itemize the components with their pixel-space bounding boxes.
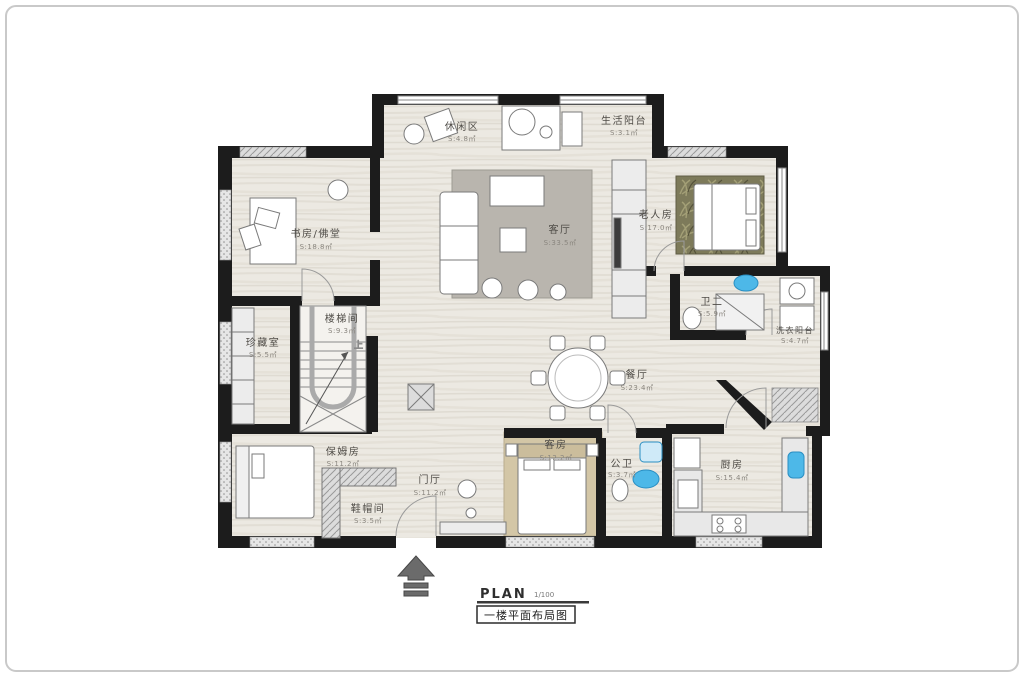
- svg-text:客厅: 客厅: [549, 223, 572, 236]
- elder-pillow-1: [746, 188, 756, 214]
- fridge: [674, 438, 700, 468]
- room-label-bath2: 卫二S:5.9㎡: [698, 297, 726, 318]
- kitchen-sink: [678, 480, 698, 508]
- svg-text:卫二: 卫二: [701, 297, 724, 308]
- svg-text:楼梯间: 楼梯间: [325, 312, 360, 325]
- svg-text:S:11.2㎡: S:11.2㎡: [327, 460, 360, 468]
- pouf-2: [518, 280, 538, 300]
- small-basin: [540, 126, 552, 138]
- plan-title: PLAN: [480, 587, 527, 602]
- svg-text:门厅: 门厅: [419, 473, 442, 486]
- svg-text:餐厅: 餐厅: [626, 368, 649, 381]
- svg-text:鞋帽间: 鞋帽间: [351, 502, 386, 515]
- pbath-sink: [633, 470, 659, 488]
- svg-text:S:18.8㎡: S:18.8㎡: [300, 243, 333, 251]
- washbasin: [509, 109, 535, 135]
- room-label-pbath: 公卫S:3.7㎡: [608, 459, 636, 479]
- svg-text:保姆房: 保姆房: [326, 445, 361, 458]
- room-label-elder: 老人房S:17.0㎡: [639, 208, 674, 232]
- room-label-shoe-closet: 鞋帽间S:3.5㎡: [351, 502, 386, 525]
- room-label-collection: 珍藏室S:5.5㎡: [246, 336, 281, 359]
- dining-chair-5: [550, 406, 565, 420]
- dining-chair-3: [550, 336, 565, 350]
- pouf-1: [482, 278, 502, 298]
- nanny-headboard: [236, 446, 249, 518]
- svg-text:S:3.7㎡: S:3.7㎡: [608, 471, 636, 479]
- svg-text:S:3.5㎡: S:3.5㎡: [354, 517, 382, 525]
- pbath-shower: [640, 442, 662, 462]
- room-label-nanny: 保姆房S:11.2㎡: [326, 445, 361, 468]
- svg-text:厨房: 厨房: [721, 458, 744, 471]
- svg-text:珍藏室: 珍藏室: [246, 336, 281, 349]
- coffee-table: [500, 228, 526, 252]
- room-label-leisure: 休闲区S:4.8㎡: [445, 120, 480, 143]
- svg-text:S:12.2㎡: S:12.2㎡: [540, 454, 573, 462]
- svg-text:公卫: 公卫: [611, 459, 634, 470]
- kitchen-sink-blue: [788, 452, 804, 478]
- pbath-toilet: [612, 479, 628, 501]
- svg-text:生活阳台: 生活阳台: [601, 114, 647, 127]
- entrance-arrow-icon: [398, 556, 434, 596]
- stairs-up-label: 上: [354, 340, 363, 351]
- svg-text:洗衣阳台: 洗衣阳台: [776, 325, 814, 335]
- svg-text:S:33.5㎡: S:33.5㎡: [544, 239, 577, 247]
- plan-caption: 一楼平面布局图: [484, 608, 568, 622]
- leisure-side-table: [404, 124, 424, 144]
- svg-text:S:4.7㎡: S:4.7㎡: [781, 337, 809, 345]
- dining-chair-1: [610, 371, 625, 385]
- sofa: [440, 192, 478, 294]
- svg-text:S:11.2㎡: S:11.2㎡: [414, 489, 447, 497]
- nanny-pillow: [252, 454, 264, 478]
- foyer-table: [466, 508, 476, 518]
- svg-text:客房: 客房: [545, 438, 568, 451]
- balcony-cabinet: [562, 112, 582, 146]
- svg-text:S:4.8㎡: S:4.8㎡: [448, 135, 476, 143]
- title-block: PLAN 1/100 一楼平面布局图: [477, 587, 589, 623]
- dining-chair-2: [590, 336, 605, 350]
- collection-shelf: [232, 308, 254, 424]
- guest-nightstand-2: [587, 444, 598, 456]
- ceiling-lamp: [328, 180, 348, 200]
- svg-text:S:23.4㎡: S:23.4㎡: [621, 384, 654, 392]
- room-label-stairwell: 楼梯间S:9.3㎡: [325, 312, 360, 335]
- dining-chair-6: [590, 406, 605, 420]
- svg-text:老人房: 老人房: [639, 208, 674, 221]
- tv: [614, 218, 621, 268]
- foyer-cabinet: [440, 522, 506, 534]
- floorplan-page: 上 休闲区S:4.8㎡ 生活阳台S:3.1㎡ 书房/佛堂S:18.8㎡ 客厅S:…: [0, 0, 1024, 677]
- guest-nightstand-1: [506, 444, 517, 456]
- dining-table: [548, 348, 608, 408]
- dining-chair-4: [531, 371, 546, 385]
- foyer-chair: [458, 480, 476, 498]
- svg-text:S:3.1㎡: S:3.1㎡: [610, 129, 638, 137]
- svg-text:S:5.5㎡: S:5.5㎡: [249, 351, 277, 359]
- pouf-3: [550, 284, 566, 300]
- console-table: [490, 176, 544, 206]
- elder-pillow-2: [746, 220, 756, 246]
- svg-text:S:5.9㎡: S:5.9㎡: [698, 310, 726, 318]
- svg-text:书房/佛堂: 书房/佛堂: [291, 227, 342, 240]
- svg-text:S:9.3㎡: S:9.3㎡: [328, 327, 356, 335]
- svg-text:休闲区: 休闲区: [445, 120, 480, 133]
- svg-text:S:17.0㎡: S:17.0㎡: [640, 224, 673, 232]
- svg-text:S:15.4㎡: S:15.4㎡: [716, 474, 749, 482]
- plan-scale: 1/100: [534, 591, 554, 599]
- floorplan-drawing: 上 休闲区S:4.8㎡ 生活阳台S:3.1㎡ 书房/佛堂S:18.8㎡ 客厅S:…: [0, 0, 1024, 677]
- bath2-sink: [734, 275, 758, 291]
